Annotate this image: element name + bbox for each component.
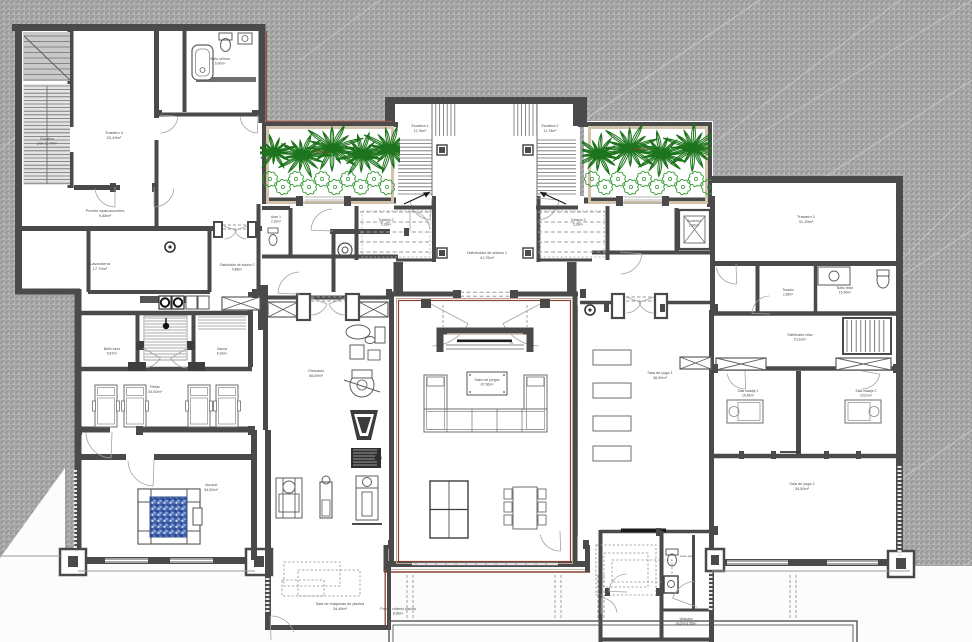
svg-text:Trastero 2: Trastero 2 xyxy=(379,218,394,222)
svg-text:Distribuidor de sótano 2: Distribuidor de sótano 2 xyxy=(220,263,255,267)
svg-text:5,28m²: 5,28m² xyxy=(573,223,584,227)
svg-text:2,86m²: 2,86m² xyxy=(689,224,700,228)
svg-text:56,69m²: 56,69m² xyxy=(309,374,324,378)
svg-text:Aseo 1: Aseo 1 xyxy=(271,215,281,219)
svg-text:Relax: Relax xyxy=(150,385,160,389)
svg-text:Tocador: Tocador xyxy=(782,288,795,292)
svg-text:Sala masaje 2: Sala masaje 2 xyxy=(856,389,877,393)
svg-text:Escalera: Escalera xyxy=(40,137,53,141)
svg-text:Baño relax: Baño relax xyxy=(837,286,854,290)
svg-text:Jacuzzi: Jacuzzi xyxy=(205,483,218,487)
svg-text:Sala de máquinas de piscina: Sala de máquinas de piscina xyxy=(316,602,365,606)
svg-text:8,38m²: 8,38m² xyxy=(393,612,404,616)
svg-text:10,31m²: 10,31m² xyxy=(794,338,807,342)
svg-text:Distribuidor de sótano 1: Distribuidor de sótano 1 xyxy=(467,251,507,255)
svg-text:20,49m²: 20,49m² xyxy=(107,135,122,140)
svg-text:Sauna: Sauna xyxy=(217,347,227,351)
svg-text:Terraza 2: Terraza 2 xyxy=(632,146,649,151)
svg-text:Tv: Tv xyxy=(509,341,513,345)
svg-text:34,50m²: 34,50m² xyxy=(148,390,163,394)
svg-text:Baño turco: Baño turco xyxy=(104,347,121,351)
svg-text:Gimnasio: Gimnasio xyxy=(308,369,324,373)
svg-text:pral. 11,70m²: pral. 11,70m² xyxy=(37,142,58,146)
svg-text:11,76m²: 11,76m² xyxy=(544,129,558,133)
svg-text:11,76m²: 11,76m² xyxy=(414,129,428,133)
svg-text:5,28m²: 5,28m² xyxy=(381,223,392,227)
svg-text:Escalera 2: Escalera 2 xyxy=(542,124,559,128)
svg-text:2,20m²: 2,20m² xyxy=(271,219,281,223)
svg-text:Aseo pisc.: Aseo pisc. xyxy=(680,554,694,558)
svg-text:17,70m²: 17,70m² xyxy=(93,266,108,271)
svg-text:15,61m²: 15,61m² xyxy=(860,394,873,398)
svg-text:Sala de yoga 1: Sala de yoga 1 xyxy=(647,371,672,375)
svg-text:Escalera 1: Escalera 1 xyxy=(412,124,429,128)
svg-text:34,50m²: 34,50m² xyxy=(795,487,810,491)
svg-text:Ascensor: Ascensor xyxy=(687,219,702,223)
svg-text:Baño señora: Baño señora xyxy=(210,57,229,61)
svg-text:36,50m²: 36,50m² xyxy=(653,376,668,380)
svg-text:2,85m²: 2,85m² xyxy=(783,293,794,297)
svg-text:87,56m²: 87,56m² xyxy=(481,383,495,387)
svg-text:Salón de juegos: Salón de juegos xyxy=(474,378,499,382)
svg-text:Sala masaje 1: Sala masaje 1 xyxy=(738,389,759,393)
svg-text:Sala de yoga 2: Sala de yoga 2 xyxy=(789,482,814,486)
svg-text:15,48m²: 15,48m² xyxy=(742,394,755,398)
svg-text:Trastero 3: Trastero 3 xyxy=(571,218,586,222)
svg-text:9,88m²: 9,88m² xyxy=(232,268,243,272)
svg-text:Terraza 1: Terraza 1 xyxy=(314,149,331,154)
svg-text:31,39m²: 31,39m² xyxy=(799,219,814,224)
svg-text:Porche cubierto piscina: Porche cubierto piscina xyxy=(380,607,415,611)
svg-text:34,52m²: 34,52m² xyxy=(204,488,219,492)
svg-text:5,90m²: 5,90m² xyxy=(215,62,226,66)
svg-text:Distribuidor relax: Distribuidor relax xyxy=(787,333,813,337)
svg-text:6,16m²: 6,16m² xyxy=(217,352,228,356)
svg-text:41,76m²: 41,76m² xyxy=(480,256,495,260)
svg-text:34,46m²: 34,46m² xyxy=(333,607,348,611)
svg-text:5,87m²: 5,87m² xyxy=(107,352,118,356)
svg-text:15,40m²: 15,40m² xyxy=(839,291,852,295)
svg-text:9,88m²: 9,88m² xyxy=(99,213,112,218)
